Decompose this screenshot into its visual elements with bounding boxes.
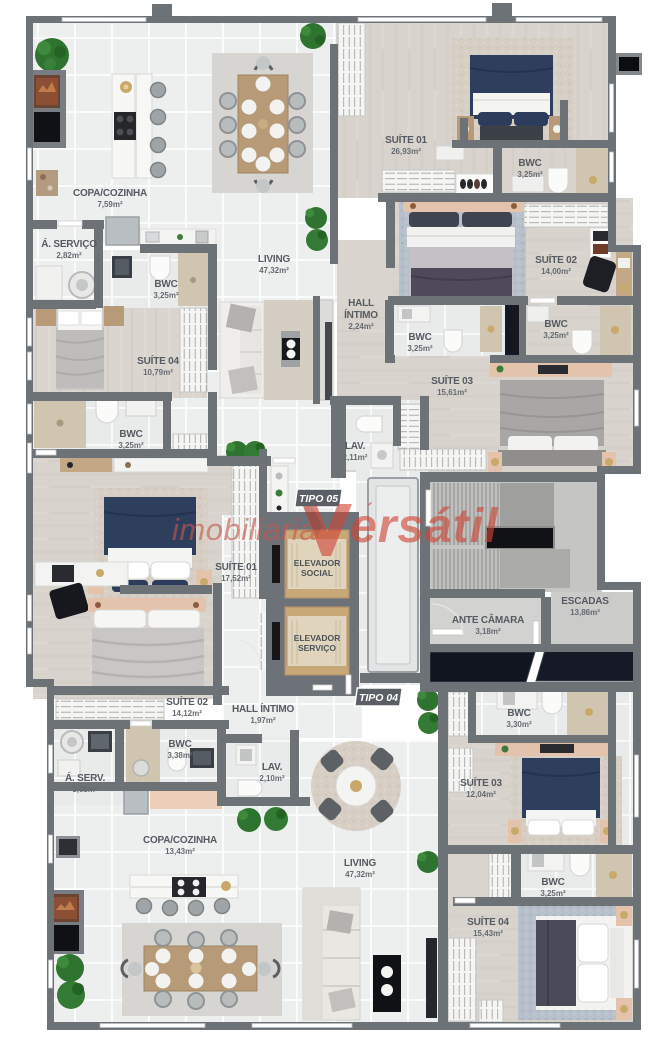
svg-text:LIVING: LIVING	[258, 254, 291, 265]
svg-text:LAV.: LAV.	[262, 762, 283, 773]
svg-text:10,79m²: 10,79m²	[143, 368, 173, 377]
svg-text:15,43m²: 15,43m²	[473, 929, 503, 938]
svg-text:BWC: BWC	[507, 708, 530, 719]
svg-text:SUÍTE 03: SUÍTE 03	[460, 776, 502, 789]
svg-text:2,11m²: 2,11m²	[343, 453, 368, 462]
svg-text:HALL: HALL	[348, 298, 374, 309]
svg-text:SUÍTE 04: SUÍTE 04	[467, 915, 509, 928]
svg-text:ANTE CÂMARA: ANTE CÂMARA	[452, 613, 524, 626]
svg-text:26,93m²: 26,93m²	[391, 147, 421, 156]
svg-text:47,32m²: 47,32m²	[259, 266, 289, 275]
svg-text:3,08m²: 3,08m²	[72, 785, 98, 794]
svg-text:3,25m²: 3,25m²	[407, 344, 433, 353]
svg-text:SUÍTE 04: SUÍTE 04	[137, 354, 179, 367]
svg-text:3,38m²: 3,38m²	[167, 751, 193, 760]
svg-text:LAV.: LAV.	[345, 441, 366, 452]
svg-text:SERVIÇO: SERVIÇO	[298, 643, 336, 653]
svg-text:BWC: BWC	[541, 877, 564, 888]
svg-text:2,10m²: 2,10m²	[259, 774, 285, 783]
svg-text:SUÍTE 02: SUÍTE 02	[166, 695, 208, 708]
svg-text:TIPO 04: TIPO 04	[359, 692, 398, 704]
svg-text:13,43m²: 13,43m²	[165, 847, 195, 856]
svg-text:47,32m²: 47,32m²	[345, 870, 375, 879]
svg-text:COPA/COZINHA: COPA/COZINHA	[73, 188, 147, 199]
svg-text:1,97m²: 1,97m²	[250, 716, 276, 725]
svg-text:BWC: BWC	[154, 279, 177, 290]
svg-text:7,59m²: 7,59m²	[97, 200, 123, 209]
svg-text:BWC: BWC	[408, 332, 431, 343]
svg-text:BWC: BWC	[168, 739, 191, 750]
svg-text:Á. SERVIÇO: Á. SERVIÇO	[41, 237, 97, 250]
svg-text:BWC: BWC	[119, 429, 142, 440]
svg-text:2,24m²: 2,24m²	[348, 322, 374, 331]
svg-text:3,25m²: 3,25m²	[517, 170, 543, 179]
svg-text:HALL ÍNTIMO: HALL ÍNTIMO	[232, 702, 294, 715]
svg-text:SOCIAL: SOCIAL	[301, 568, 333, 578]
svg-text:13,86m²: 13,86m²	[570, 608, 600, 617]
svg-text:3,25m²: 3,25m²	[540, 889, 566, 898]
svg-text:SUÍTE 02: SUÍTE 02	[535, 253, 577, 266]
svg-text:COPA/COZINHA: COPA/COZINHA	[143, 835, 217, 846]
svg-text:14,00m²: 14,00m²	[541, 267, 571, 276]
svg-text:TIPO 05: TIPO 05	[299, 493, 338, 505]
svg-text:3,25m²: 3,25m²	[118, 441, 144, 450]
svg-text:´: ´	[367, 500, 373, 520]
svg-text:14,12m²: 14,12m²	[172, 709, 202, 718]
svg-text:3,25m²: 3,25m²	[153, 291, 179, 300]
svg-text:SUÍTE 01: SUÍTE 01	[215, 560, 257, 573]
svg-text:ELEVADOR: ELEVADOR	[294, 558, 341, 568]
svg-text:ESCADAS: ESCADAS	[561, 596, 609, 607]
svg-text:Á. SERV.: Á. SERV.	[65, 771, 106, 784]
svg-text:SUÍTE 03: SUÍTE 03	[431, 374, 473, 387]
svg-text:BWC: BWC	[544, 319, 567, 330]
svg-text:ELEVADOR: ELEVADOR	[294, 633, 341, 643]
svg-text:2,82m²: 2,82m²	[56, 251, 82, 260]
svg-text:12,04m²: 12,04m²	[466, 790, 496, 799]
svg-text:ÍNTIMO: ÍNTIMO	[344, 308, 378, 321]
svg-text:LIVING: LIVING	[344, 858, 377, 869]
svg-text:15,61m²: 15,61m²	[437, 388, 467, 397]
svg-text:3,18m²: 3,18m²	[475, 627, 501, 636]
svg-text:3,30m²: 3,30m²	[506, 720, 532, 729]
svg-text:3,25m²: 3,25m²	[543, 331, 569, 340]
svg-text:17,52m²: 17,52m²	[221, 574, 251, 583]
svg-text:imobiliaria: imobiliaria	[172, 512, 317, 547]
svg-text:SUÍTE 01: SUÍTE 01	[385, 133, 427, 146]
svg-text:BWC: BWC	[518, 158, 541, 169]
